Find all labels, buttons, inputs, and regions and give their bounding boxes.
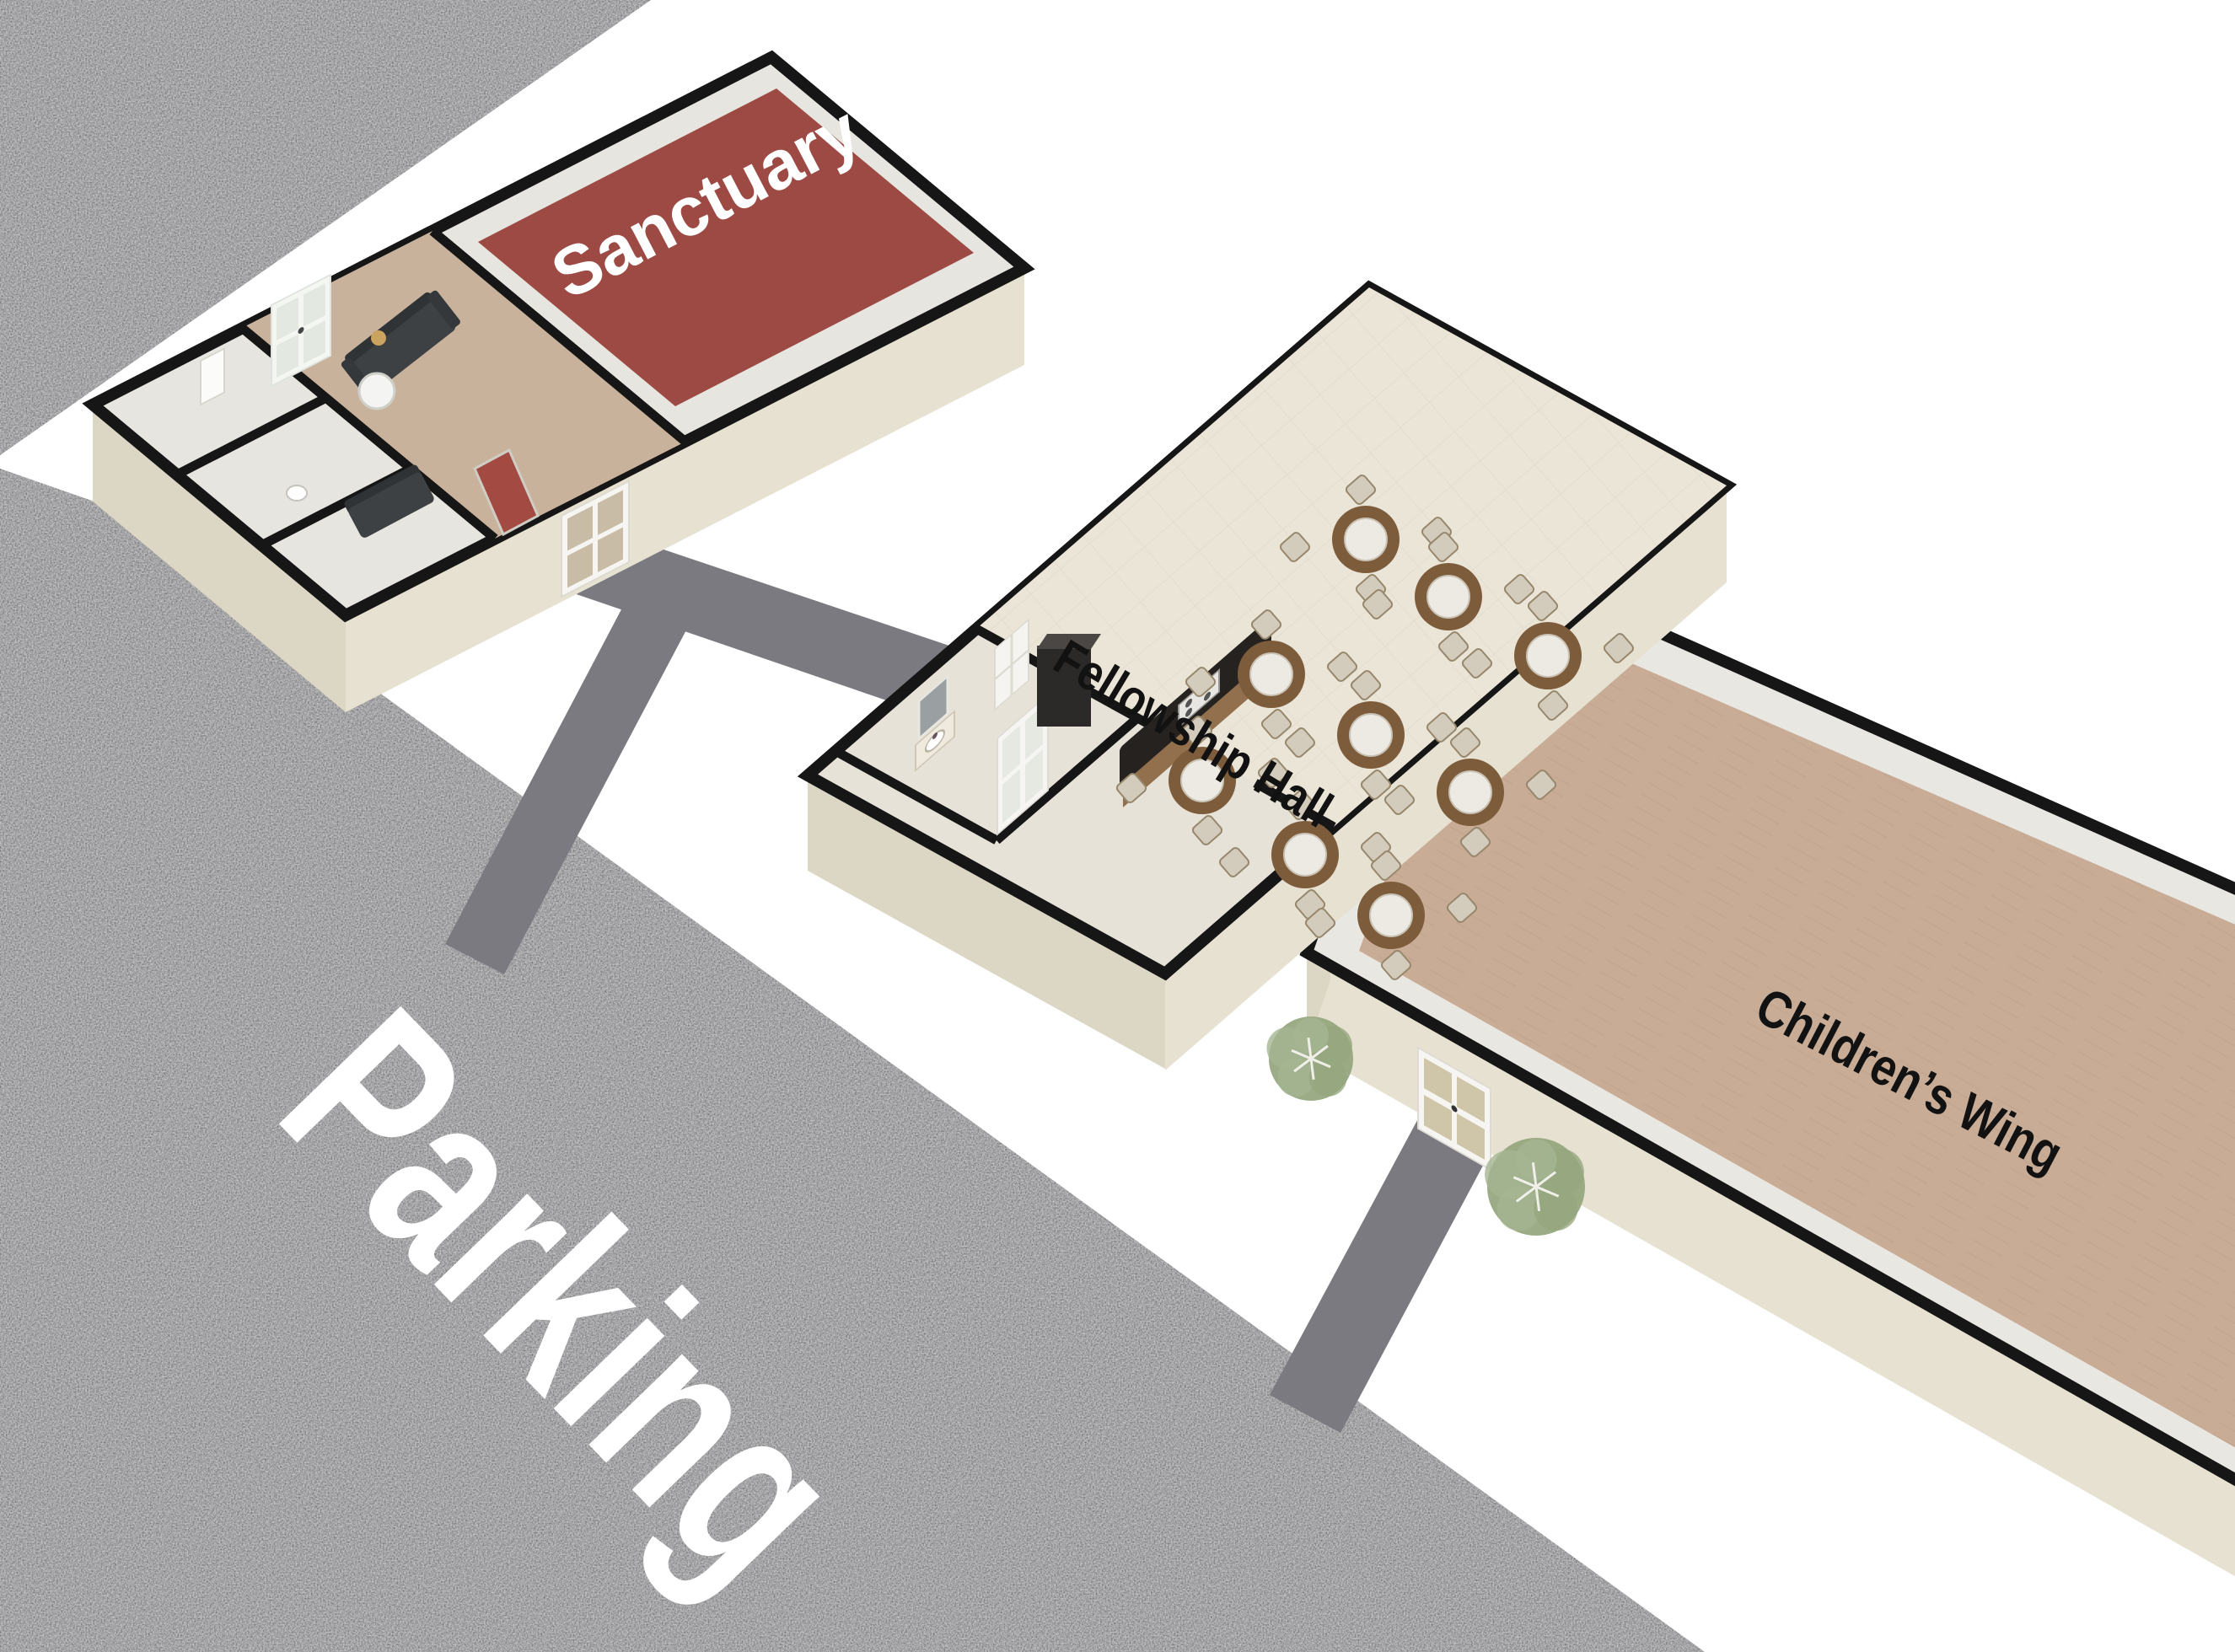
lobby-floor-lamp [371, 330, 386, 346]
table-top [1345, 518, 1387, 560]
tree-foliage [1516, 1140, 1557, 1181]
tree-foliage [1534, 1187, 1577, 1231]
table-top [1350, 714, 1392, 756]
table-top [1527, 635, 1569, 677]
table-top [1370, 894, 1412, 936]
table-top [1284, 834, 1326, 876]
tree [1485, 1138, 1585, 1236]
table-top [1250, 653, 1292, 695]
tree [1267, 1016, 1354, 1101]
walkway-childrens-wing [1270, 1113, 1491, 1433]
table-top [1449, 771, 1491, 813]
table-top [1427, 576, 1469, 618]
lobby-side-table [359, 373, 395, 409]
office-toilet [287, 485, 307, 501]
site-plan-canvas: Parking Children’s Wing [0, 0, 2235, 1652]
